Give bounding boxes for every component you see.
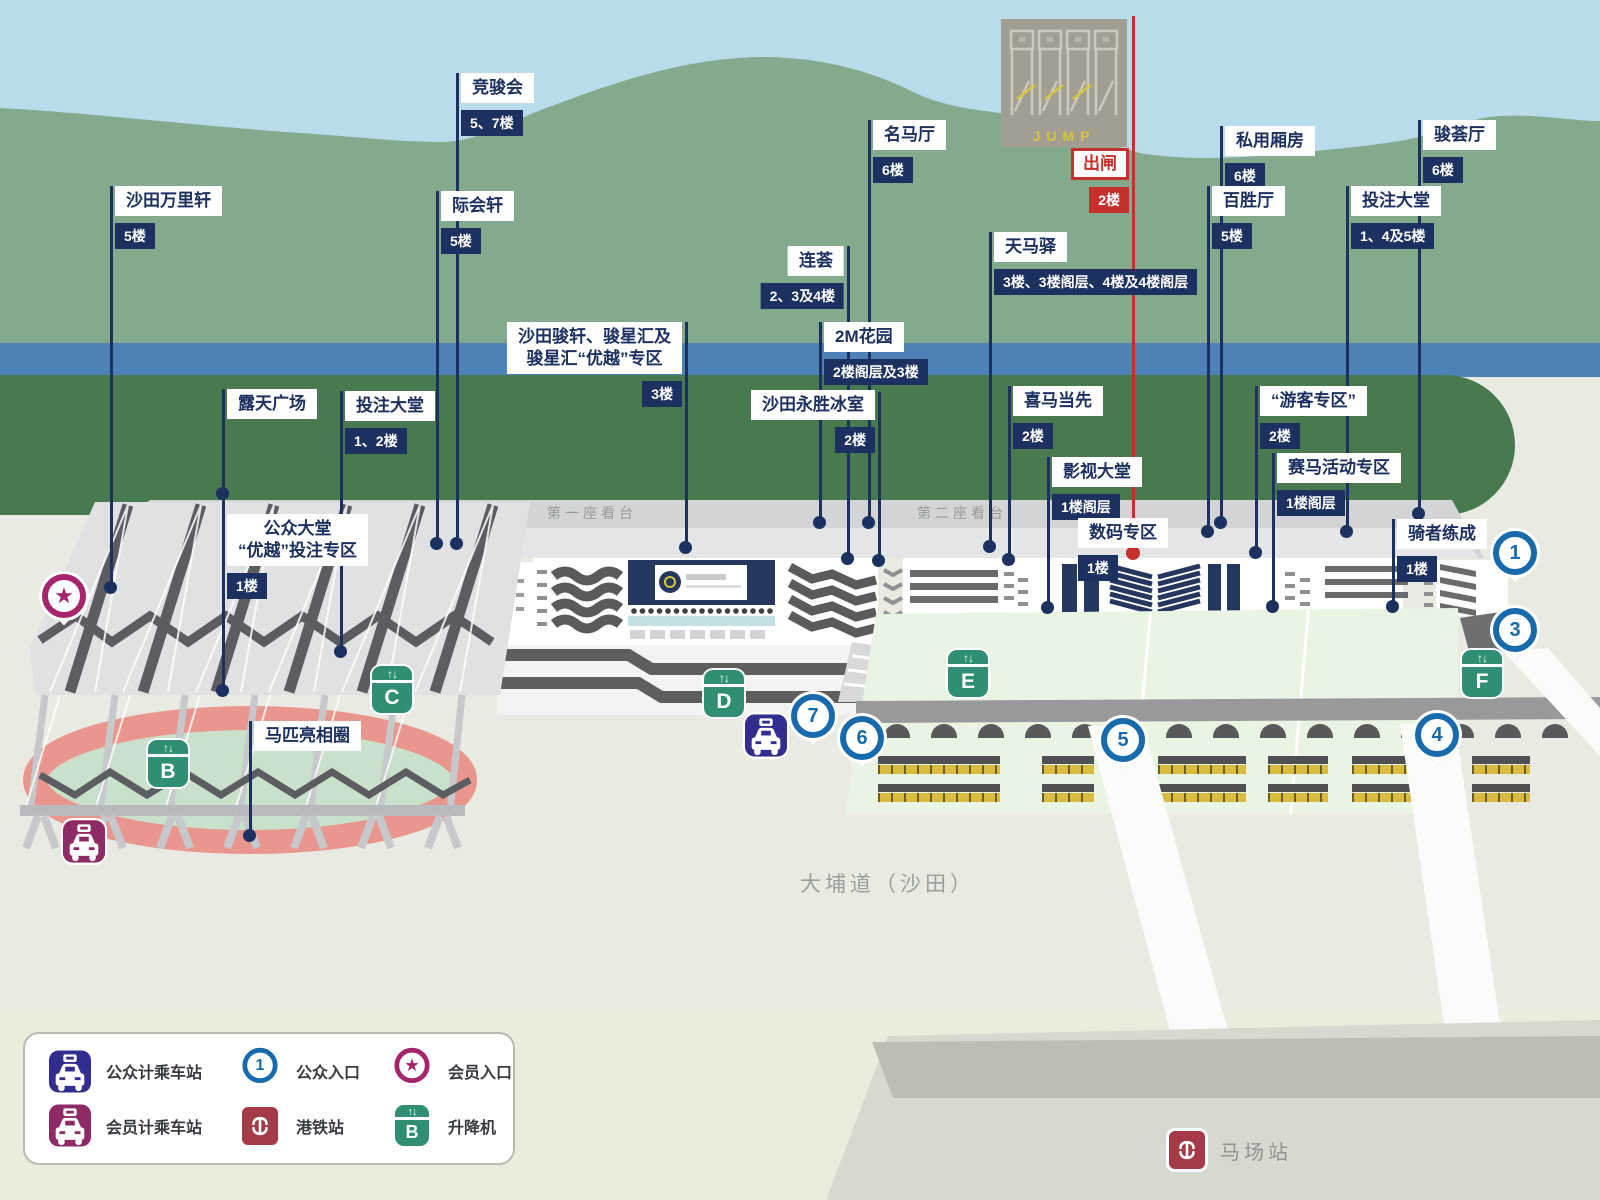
taxi-public-icon [47, 1046, 93, 1096]
taxi-member-icon [47, 1101, 93, 1151]
shatin-racecourse-map: JUMP 第一座看台 第二座看台 [0, 0, 1600, 1200]
pin-circle: 1 [242, 1048, 277, 1083]
stand-one-label: 第一座看台 [547, 503, 637, 523]
lift-icon: ↑↓B [389, 1101, 435, 1151]
hills-backdrop [0, 0, 1600, 380]
public-enclosure-canopy [0, 480, 560, 880]
legend-item-taxi-public: 公众计乘车站 [47, 1046, 237, 1096]
legend-item-taxi-member: 会员计乘车站 [47, 1101, 237, 1151]
legend-label: 港铁站 [296, 1114, 344, 1138]
public-entrance-pin-icon: 1 [237, 1046, 283, 1096]
legend-item-entrance-pin: 1 公众入口 [237, 1046, 389, 1096]
station-label: 马场站 [1166, 1128, 1292, 1172]
legend-label: 会员计乘车站 [106, 1114, 202, 1138]
pin-circle: ★ [394, 1048, 429, 1083]
legend-label: 公众计乘车站 [106, 1059, 202, 1083]
stand-two-label: 第二座看台 [917, 503, 1007, 523]
member-entrance-pin-icon: ★ [389, 1046, 435, 1096]
legend-item-lift: ↑↓B 升降机 [389, 1101, 539, 1151]
legend-label: 升降机 [448, 1114, 496, 1138]
legend-label: 会员入口 [448, 1059, 512, 1083]
mtr-icon [1166, 1128, 1208, 1172]
legend-item-member-pin: ★ 会员入口 [389, 1046, 539, 1096]
legend-item-mtr: 港铁站 [237, 1101, 389, 1151]
legend-label: 公众入口 [296, 1059, 360, 1083]
station-name: 马场站 [1220, 1136, 1292, 1165]
river-band [0, 343, 1600, 378]
mtr-station-icon [237, 1101, 283, 1151]
legend: 公众计乘车站 1 公众入口 ★ 会员入口 会员计乘车站 港铁站 ↑↓B 升降机 [23, 1032, 515, 1165]
road-label: 大埔道（沙田） [800, 868, 975, 898]
jump-sign-text: JUMP [1001, 128, 1127, 144]
